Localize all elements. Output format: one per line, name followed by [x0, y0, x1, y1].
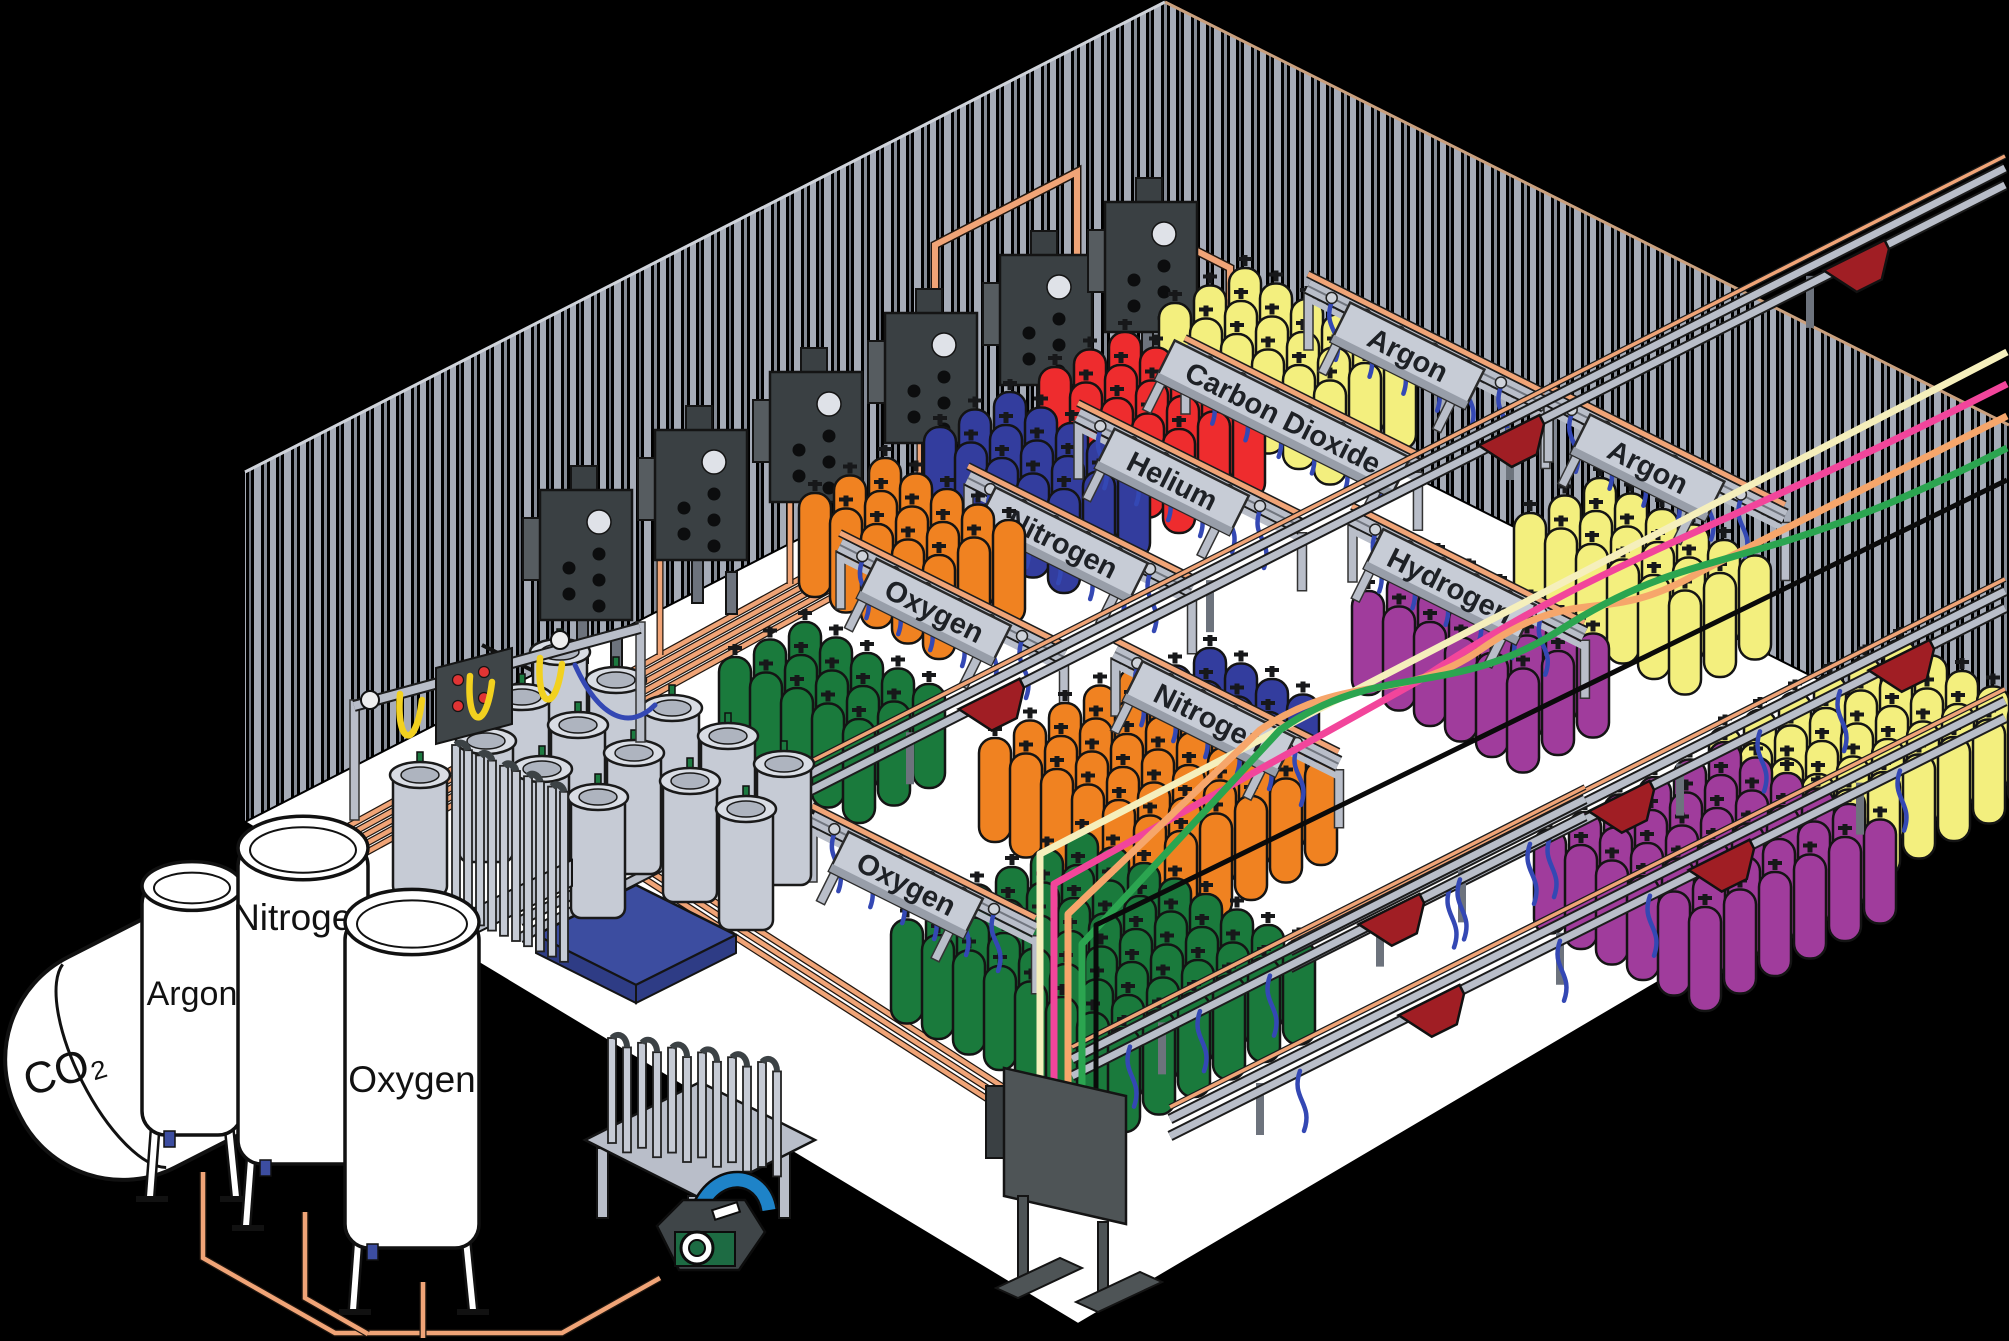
liquid-dewar [716, 786, 776, 930]
gas-cylinder [1010, 741, 1042, 858]
storage-tank: Oxygen [339, 889, 489, 1312]
tank-valve [164, 1131, 175, 1147]
pressure-gauge [551, 631, 569, 649]
panel-button [453, 675, 464, 686]
hose-clamp [857, 551, 868, 562]
hose-clamp [1095, 421, 1106, 432]
gas-cylinder [1794, 842, 1826, 959]
panel-gauge [932, 333, 956, 357]
panel-gauge [817, 392, 841, 416]
panel-gauge [1047, 275, 1071, 299]
tank-label: Oxygen [348, 1059, 476, 1100]
gas-cylinder [891, 907, 923, 1024]
liquid-dewar [390, 752, 450, 896]
gas-cylinder [1689, 894, 1721, 1011]
gas-cylinder [1829, 824, 1861, 941]
tank-label: Argon [147, 975, 238, 1013]
panel-gauge [1152, 222, 1176, 246]
gas-cylinder [1724, 877, 1756, 994]
hose-clamp [1495, 377, 1506, 388]
transfer-pump [657, 1180, 769, 1270]
tank-valve [367, 1244, 378, 1260]
hose-clamp [1370, 524, 1381, 535]
hose-clamp [1254, 500, 1265, 511]
gas-cylinder [799, 480, 831, 597]
gas-cylinder [953, 938, 985, 1055]
gas-cylinder [993, 507, 1025, 624]
gas-cylinder [1658, 879, 1690, 996]
tank-valve [260, 1160, 271, 1176]
liquid-dewar [568, 774, 628, 918]
panel-gauge [702, 450, 726, 474]
pressure-gauge [361, 691, 379, 709]
gas-cylinder [1759, 859, 1791, 976]
scene-canvas: ArgonCarbon DioxideHeliumNitrogenArgonHy… [0, 0, 2009, 1341]
gas-plant-illustration: ArgonCarbon DioxideHeliumNitrogenArgonHy… [0, 0, 2009, 1341]
hose-clamp [829, 824, 840, 835]
panel-gauge [587, 510, 611, 534]
hose-clamp [1016, 630, 1027, 641]
hose-clamp [1326, 292, 1337, 303]
hose-clamp [988, 903, 999, 914]
panel-button [453, 701, 464, 712]
panel-button [479, 667, 490, 678]
gas-cylinder [979, 725, 1011, 842]
liquid-dewar [660, 758, 720, 902]
gas-cylinder [1864, 807, 1896, 924]
